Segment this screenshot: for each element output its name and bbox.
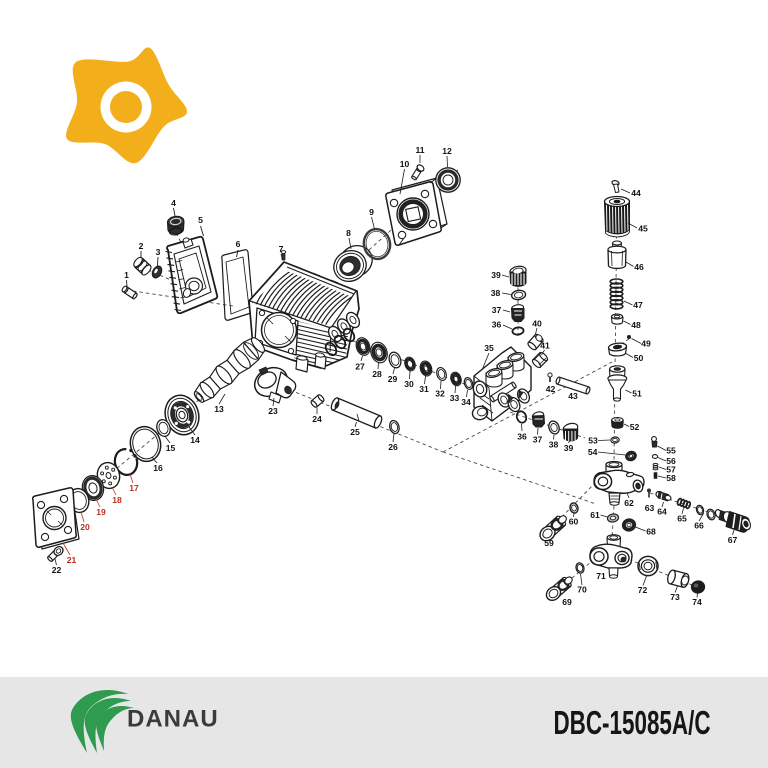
svg-text:20: 20	[80, 522, 90, 532]
svg-text:35: 35	[484, 343, 494, 353]
svg-text:16: 16	[153, 463, 163, 473]
svg-text:34: 34	[461, 397, 471, 407]
svg-text:60: 60	[569, 517, 579, 527]
svg-text:4: 4	[171, 198, 176, 208]
svg-text:46: 46	[634, 262, 644, 272]
svg-text:64: 64	[657, 507, 667, 517]
svg-text:36: 36	[492, 320, 502, 330]
svg-text:24: 24	[312, 414, 322, 424]
svg-text:21: 21	[67, 555, 77, 565]
svg-text:12: 12	[442, 146, 452, 156]
svg-text:6: 6	[236, 239, 241, 249]
svg-text:26: 26	[388, 442, 398, 452]
svg-text:73: 73	[670, 592, 680, 602]
svg-text:10: 10	[400, 159, 410, 169]
svg-text:DANAU: DANAU	[127, 706, 219, 733]
svg-text:22: 22	[52, 565, 62, 575]
svg-text:40: 40	[532, 319, 542, 329]
svg-text:43: 43	[568, 391, 578, 401]
svg-text:DBC-15085A/C: DBC-15085A/C	[553, 704, 710, 741]
svg-text:63: 63	[645, 503, 655, 513]
svg-text:67: 67	[728, 535, 738, 545]
svg-text:27: 27	[355, 362, 365, 372]
svg-text:9: 9	[369, 207, 374, 217]
svg-text:30: 30	[404, 379, 414, 389]
svg-text:37: 37	[533, 435, 543, 445]
svg-text:44: 44	[631, 188, 641, 198]
svg-text:70: 70	[577, 585, 587, 595]
svg-text:17: 17	[129, 483, 139, 493]
svg-text:19: 19	[96, 507, 106, 517]
svg-text:50: 50	[634, 353, 644, 363]
svg-text:13: 13	[214, 404, 224, 414]
svg-text:55: 55	[666, 446, 676, 456]
svg-text:37: 37	[492, 305, 502, 315]
svg-text:32: 32	[435, 389, 445, 399]
svg-text:1: 1	[124, 270, 129, 280]
svg-text:23: 23	[268, 406, 278, 416]
svg-text:33: 33	[450, 393, 460, 403]
svg-text:36: 36	[517, 432, 527, 442]
svg-text:53: 53	[588, 436, 598, 446]
svg-text:52: 52	[630, 422, 640, 432]
svg-text:47: 47	[633, 300, 643, 310]
svg-text:48: 48	[631, 320, 641, 330]
svg-text:68: 68	[646, 527, 656, 537]
svg-text:61: 61	[590, 510, 600, 520]
svg-text:31: 31	[419, 384, 429, 394]
svg-text:38: 38	[549, 440, 559, 450]
svg-text:41: 41	[540, 341, 550, 351]
svg-text:45: 45	[638, 224, 648, 234]
svg-text:71: 71	[596, 571, 606, 581]
svg-text:42: 42	[546, 384, 556, 394]
svg-text:11: 11	[415, 145, 424, 155]
svg-text:5: 5	[198, 215, 203, 225]
svg-text:51: 51	[632, 389, 642, 399]
svg-text:8: 8	[346, 228, 351, 238]
svg-text:28: 28	[372, 369, 382, 379]
svg-text:62: 62	[624, 498, 634, 508]
svg-text:39: 39	[491, 270, 501, 280]
svg-text:66: 66	[694, 521, 704, 531]
svg-text:15: 15	[166, 443, 176, 453]
svg-text:25: 25	[350, 427, 360, 437]
svg-text:29: 29	[388, 374, 398, 384]
svg-text:72: 72	[638, 585, 648, 595]
svg-text:18: 18	[112, 495, 122, 505]
svg-text:3: 3	[156, 247, 161, 257]
svg-text:14: 14	[190, 435, 200, 445]
svg-text:54: 54	[588, 447, 598, 457]
svg-text:59: 59	[544, 538, 554, 548]
svg-text:7: 7	[279, 244, 284, 254]
svg-text:58: 58	[666, 473, 676, 483]
svg-text:69: 69	[562, 597, 572, 607]
svg-text:39: 39	[564, 443, 574, 453]
svg-text:65: 65	[677, 514, 687, 524]
svg-text:49: 49	[641, 339, 651, 349]
svg-text:2: 2	[139, 241, 144, 251]
svg-text:74: 74	[692, 597, 702, 607]
svg-text:38: 38	[491, 288, 501, 298]
